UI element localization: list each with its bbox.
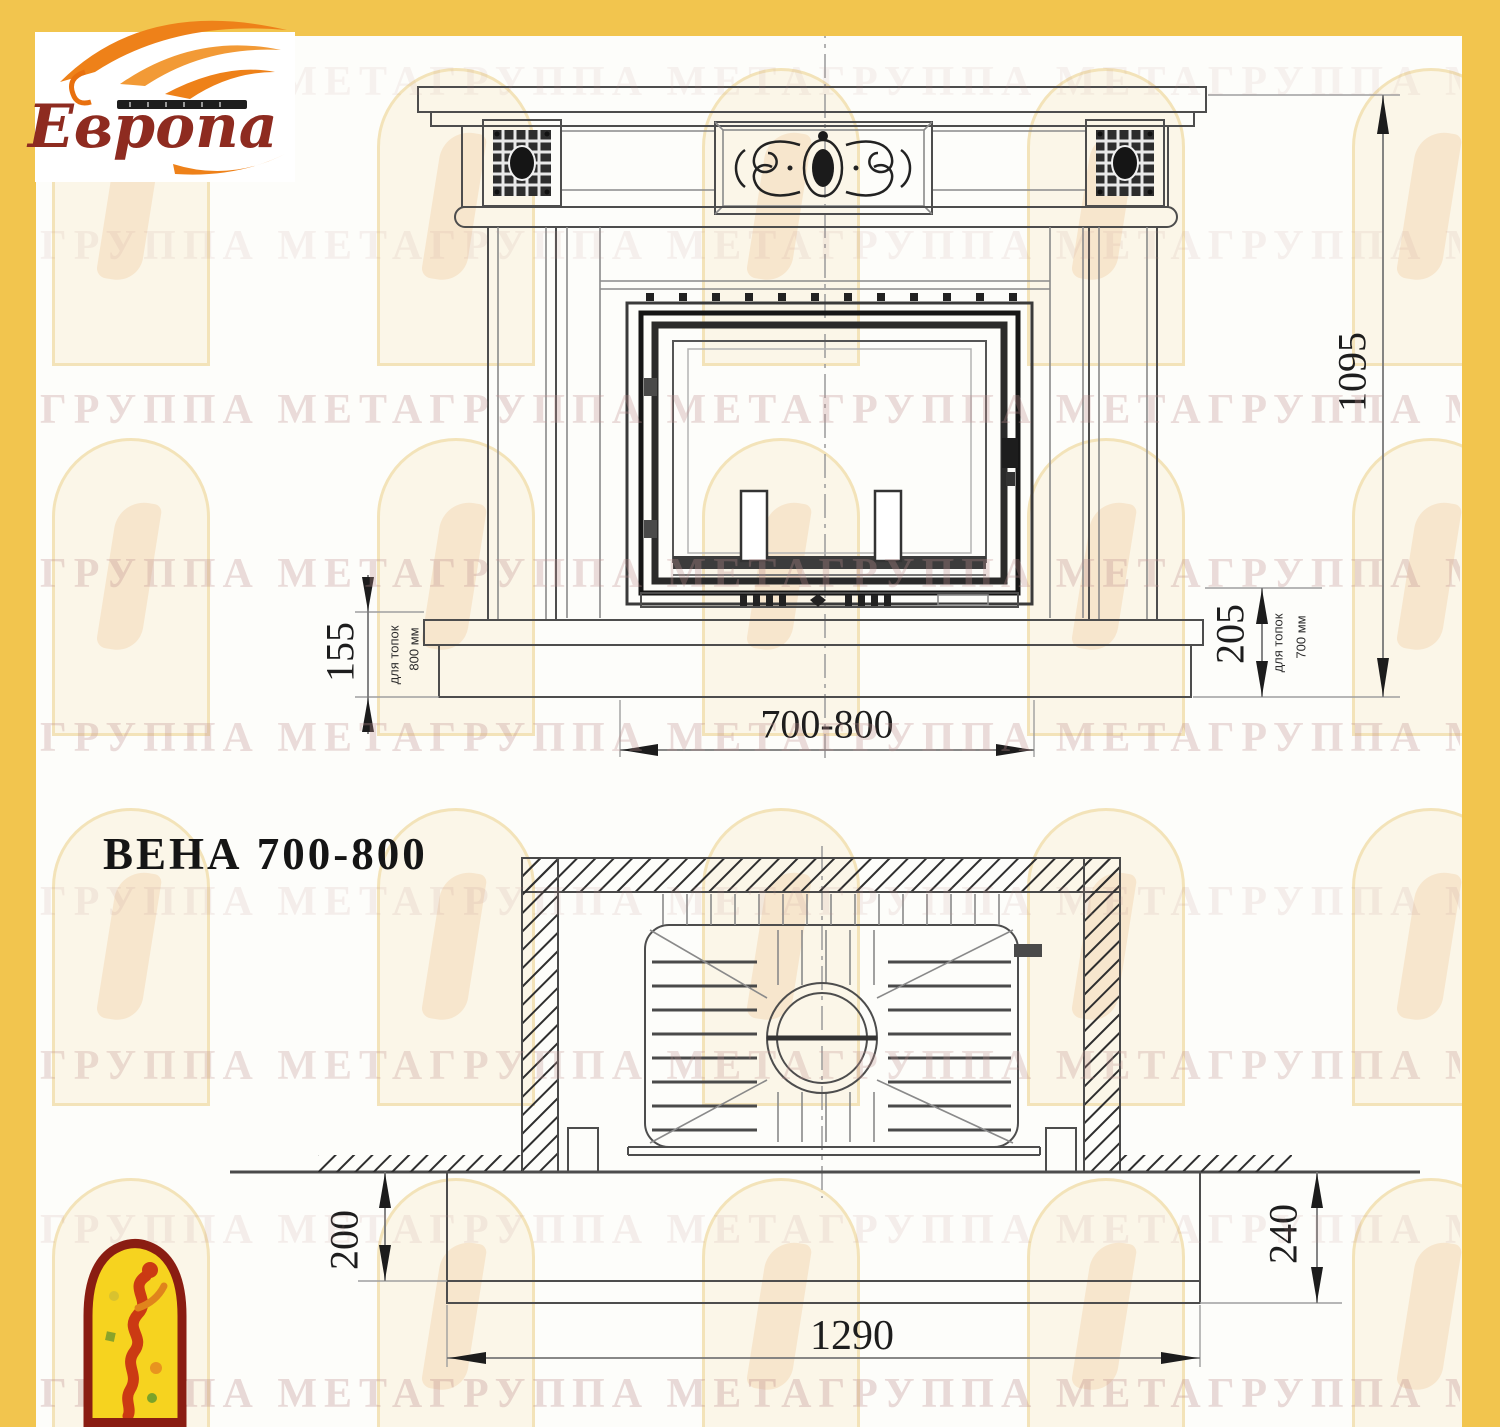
dim-opening-width: 700-800 bbox=[760, 701, 893, 748]
page-border-right bbox=[1462, 0, 1500, 1427]
note-plinth-left-2: 800 мм bbox=[407, 627, 422, 670]
note-plinth-right-1: для топок bbox=[1271, 614, 1286, 673]
foot-right bbox=[1046, 1128, 1076, 1172]
foot-left bbox=[568, 1128, 598, 1172]
page-border-left bbox=[0, 0, 36, 1427]
right-rosette-ornament bbox=[1086, 120, 1164, 206]
spec-sheet-page: 1095 155 для топок 800 мм 205 для топок … bbox=[0, 0, 1500, 1427]
vent-slots bbox=[646, 293, 1017, 301]
dim-hearth-depth-right: 240 bbox=[1260, 1204, 1307, 1264]
dim-plinth-left: 155 bbox=[317, 622, 364, 682]
dim-plinth-right: 205 bbox=[1207, 604, 1254, 664]
grate-bar bbox=[673, 556, 986, 569]
glass-panel bbox=[673, 341, 986, 562]
center-scroll-ornament bbox=[715, 122, 932, 214]
model-title: ВЕНА 700-800 bbox=[103, 828, 428, 880]
dim-hearth-width: 1290 bbox=[810, 1312, 894, 1360]
andiron-right bbox=[875, 491, 901, 561]
left-rosette-ornament bbox=[483, 120, 561, 206]
meta-group-logo bbox=[80, 1238, 190, 1427]
wall-hatching bbox=[230, 858, 1420, 1172]
dim-hearth-depth-left: 200 bbox=[321, 1210, 368, 1270]
plan-view-drawing bbox=[230, 846, 1420, 1367]
plinth-base bbox=[424, 620, 1203, 697]
hearth-slab bbox=[447, 1172, 1200, 1303]
door-frame bbox=[641, 313, 1018, 593]
hinge-top bbox=[644, 378, 657, 396]
firebox-insert bbox=[627, 293, 1032, 607]
note-plinth-right-2: 700 мм bbox=[1294, 615, 1309, 658]
dim-total-height: 1095 bbox=[1329, 332, 1376, 412]
brand-name-text: Европа bbox=[28, 92, 278, 162]
note-plinth-left-1: для топок bbox=[387, 626, 402, 685]
door-handle bbox=[1002, 438, 1018, 468]
hinge-bottom bbox=[644, 520, 657, 538]
handle-top-view bbox=[1014, 944, 1042, 957]
molding-band bbox=[455, 207, 1177, 227]
andiron-left bbox=[741, 491, 767, 561]
